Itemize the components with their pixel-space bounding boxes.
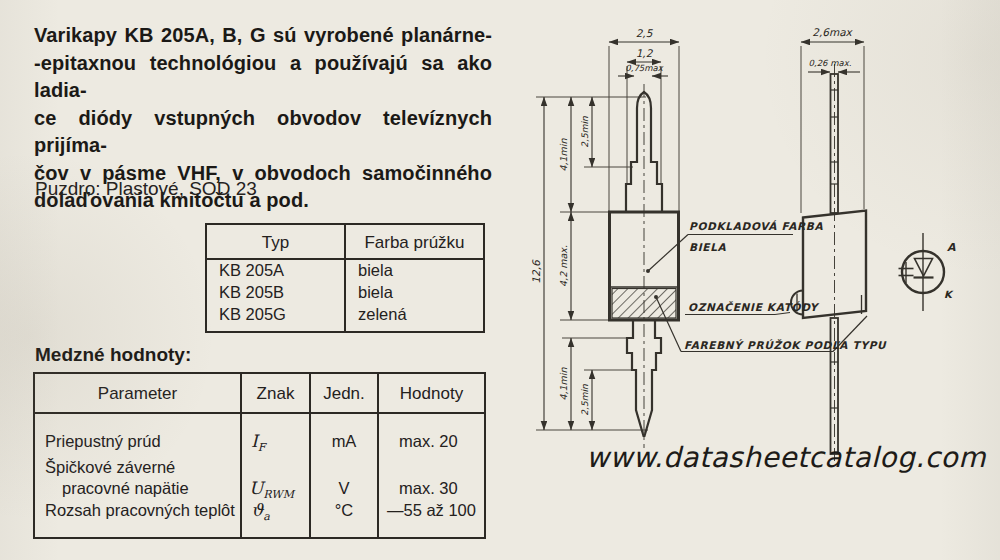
limit-parameter: Priepustný prúd (45, 432, 161, 451)
limits-table: Parameter Znak Jedn. Hodnoty Priepustný … (33, 372, 486, 539)
package-drawing: 2,5 1,2 0,75max 12,6 4,1min 2,5min 4,2 m… (500, 0, 1000, 560)
anode-label: A (947, 241, 956, 254)
package-info: Puzdro: Plastové, SOD 23 (35, 178, 257, 200)
limits-header-hodnoty: Hodnoty (379, 384, 484, 404)
type-table-header-divider (207, 258, 483, 260)
front-color-stripe (612, 289, 676, 319)
limit-value: max. 20 (399, 432, 458, 451)
dim-1-2: 1,2 (636, 47, 654, 59)
dim-12-6: 12,6 (530, 259, 542, 284)
dim-0-26: 0,26 max. (809, 58, 852, 68)
callout-cathode-mark: OZNAČENIE KATÓDY (688, 301, 820, 313)
varicap-symbol: A K (899, 233, 957, 311)
limit-symbol: ϑ (251, 500, 263, 520)
intro-line-3: ce diódy vstupných obvodov televíznych p… (34, 105, 492, 160)
dim-4-1-bottom: 4,1min (558, 367, 569, 401)
dim-2-6: 2,6max (812, 26, 853, 38)
cathode-label: K (944, 289, 954, 300)
limit-value: —55 až 100 (387, 501, 476, 520)
dim-0-75: 0,75max (625, 63, 663, 73)
callout-base-color-line1: PODKLADOVÁ FARBA (689, 220, 824, 232)
watermark-url: www.datasheetcatalog.com (586, 441, 986, 474)
type-table: Typ Farba prúžku KB 205A KB 205B KB 205G… (205, 223, 485, 333)
dim-2-5: 2,5 (636, 27, 654, 39)
type-row-typ: KB 205G (219, 305, 286, 324)
dim-2-5min-bottom: 2,5min (580, 384, 590, 416)
limits-header-divider (35, 412, 484, 414)
limit-parameter: Rozsah pracovných teplôt (45, 501, 235, 520)
limit-symbol-sub: F (258, 441, 266, 454)
limits-heading: Medzné hodnoty: (35, 344, 191, 366)
callout-color-stripe: FAREBNÝ PRÚŽOK PODĽA TYPU (684, 339, 887, 351)
limit-symbol: U (249, 478, 263, 498)
datasheet-page: Varikapy KB 205A, B, G sú vyrobené planá… (0, 0, 1000, 560)
limits-header-jedn: Jedn. (311, 384, 377, 404)
type-row-farba: biela (358, 283, 393, 302)
intro-line-2: -epitaxnou technológiou a používajú sa a… (34, 50, 492, 105)
type-row-farba: zelená (358, 305, 407, 324)
type-row-typ: KB 205B (219, 283, 284, 302)
dim-4-2: 4,2 max. (558, 245, 569, 287)
limit-symbol: I (251, 431, 258, 451)
leader-line-base-color (648, 235, 688, 272)
limit-unit: mA (311, 432, 377, 451)
dim-2-5min-top: 2,5min (580, 116, 590, 148)
limits-header-znak: Znak (242, 384, 309, 404)
limit-parameter-line2: pracovné napätie (62, 479, 189, 498)
intro-line-1: Varikapy KB 205A, B, G sú vyrobené planá… (34, 22, 492, 50)
limit-symbol-sub: a (263, 510, 270, 523)
type-row-typ: KB 205A (219, 261, 284, 280)
type-table-header-farba: Farba prúžku (346, 233, 483, 253)
limit-unit: °C (311, 501, 377, 520)
limit-value: max. 30 (399, 479, 458, 498)
type-table-header-typ: Typ (207, 233, 344, 253)
limits-header-parameter: Parameter (35, 384, 240, 404)
limit-unit: V (311, 479, 377, 498)
limit-parameter-line1: Špičkové záverné (45, 458, 175, 477)
type-row-farba: biela (358, 261, 393, 280)
dim-4-1-top: 4,1min (558, 138, 569, 172)
callout-base-color-line2: BIELA (689, 241, 727, 253)
